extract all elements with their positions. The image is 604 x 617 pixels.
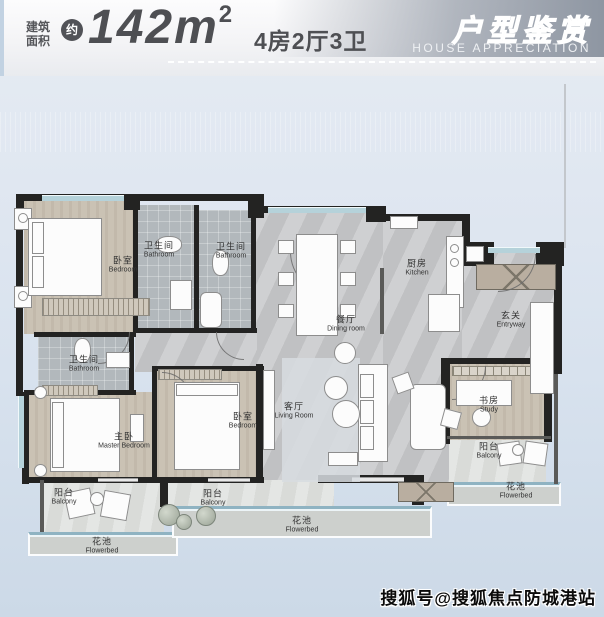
floorplan-poster: 建筑 面积 约 142m2 4房2厅3卫 户型鉴赏 HOUSE APPRECIA…: [0, 0, 604, 617]
room-label-kitchen: 厨房Kitchen: [405, 258, 428, 277]
room-label-flowerbed-middle: 花池Flowerbed: [286, 515, 319, 534]
room-label-balcony-left: 阳台Balcony: [52, 487, 77, 506]
room-label-entryway: 玄关Entryway: [497, 310, 526, 329]
room-label-living-room: 客厅Living Room: [275, 401, 314, 420]
room-label-flowerbed-right: 花池Flowerbed: [500, 481, 533, 500]
room-label-dining-room: 餐厅Dining room: [327, 314, 365, 333]
floorplan: 卧室Bedroom卫生间Bathroom卫生间Bathroom餐厅Dining …: [0, 0, 604, 617]
room-label-bathroom-top-1: 卫生间Bathroom: [144, 240, 174, 259]
watermark: 搜狐号@搜狐焦点防城港站: [380, 584, 596, 609]
room-label-bedroom-top: 卧室Bedroom: [109, 255, 137, 274]
room-label-bathroom-master: 卫生间Bathroom: [69, 354, 99, 373]
room-label-balcony-right: 阳台Balcony: [477, 441, 502, 460]
room-label-master-bedroom: 主卧Master Bedroom: [98, 431, 150, 450]
room-label-flowerbed-left: 花池Flowerbed: [86, 536, 119, 555]
room-labels: 卧室Bedroom卫生间Bathroom卫生间Bathroom餐厅Dining …: [0, 0, 604, 617]
room-label-bedroom-bottom: 卧室Bedroom: [229, 411, 257, 430]
room-label-balcony-middle: 阳台Balcony: [201, 488, 226, 507]
room-label-bathroom-top-2: 卫生间Bathroom: [216, 241, 246, 260]
room-label-study: 书房Study: [479, 395, 499, 414]
